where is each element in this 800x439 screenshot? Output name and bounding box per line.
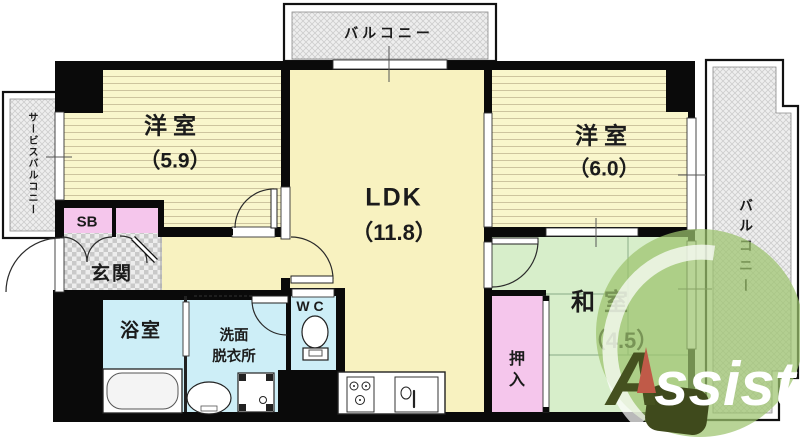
room-west2-size: （6.0） — [568, 159, 639, 180]
washing-machine-icon — [238, 373, 274, 412]
west1-door-opening — [232, 227, 275, 237]
west1-door-frame — [281, 187, 290, 239]
entrance-door-arc — [6, 238, 60, 292]
room-west1-label: 洋室 — [144, 115, 202, 138]
room-japanese-label: 和室 — [571, 291, 637, 315]
washroom-door-leaf — [252, 296, 288, 303]
bathroom-label: 浴室 — [120, 322, 162, 341]
washroom-label-line2: 脱衣所 — [212, 350, 256, 365]
hallway-floor — [158, 230, 290, 298]
oshiire-slider — [543, 296, 549, 412]
entrance-label: 玄関 — [91, 265, 133, 284]
service-balcony-label: サービスバルコニー — [26, 112, 36, 216]
floor-plan: 洋室 （5.9） LDK （11.8） 洋室 （6.0） 和室 （4.5） 玄関… — [0, 0, 800, 425]
balcony-right-label: バルコニー — [739, 198, 753, 298]
toilet-label: WC — [296, 299, 327, 313]
kitchen-sink-icon — [395, 377, 438, 412]
room-japanese-size: （4.5） — [584, 330, 659, 352]
room-west1-size: （5.9） — [139, 151, 210, 172]
wc-door-frame — [292, 289, 334, 297]
room-ldk-size: （11.8） — [351, 222, 437, 244]
west2-balcony-door — [687, 118, 696, 230]
japanese-door-opening — [484, 242, 492, 288]
closet-oshiire-label: 押入 — [506, 350, 522, 392]
bathroom-slider — [183, 302, 189, 356]
japanese-door-leaf — [492, 238, 538, 244]
floor-plan-drawing — [0, 0, 800, 425]
washbasin-icon — [187, 382, 231, 414]
hall-ldk-door-leaf — [291, 276, 333, 283]
toilet-icon — [302, 316, 328, 360]
bathtub-icon — [103, 369, 182, 413]
room-west2-floor — [486, 68, 695, 230]
washroom-label-line1: 洗面 — [220, 329, 249, 344]
kitchen-counter — [338, 372, 445, 414]
shoe-box-label: SB — [77, 215, 98, 230]
stove-icon — [347, 377, 374, 412]
west2-japanese-slider — [546, 228, 638, 236]
west1-door-leaf — [271, 189, 277, 228]
shoe-box-2 — [116, 208, 158, 235]
ldk-west2-slider — [484, 113, 492, 227]
balcony-top-label: バルコニー — [344, 26, 434, 40]
japanese-balcony-door — [687, 241, 696, 349]
room-ldk-label: LDK — [365, 186, 422, 211]
balcony-top-door — [333, 60, 447, 69]
service-balcony-door — [55, 112, 64, 200]
entrance-door-leaf — [55, 238, 64, 292]
room-west2-label: 洋室 — [575, 125, 633, 148]
